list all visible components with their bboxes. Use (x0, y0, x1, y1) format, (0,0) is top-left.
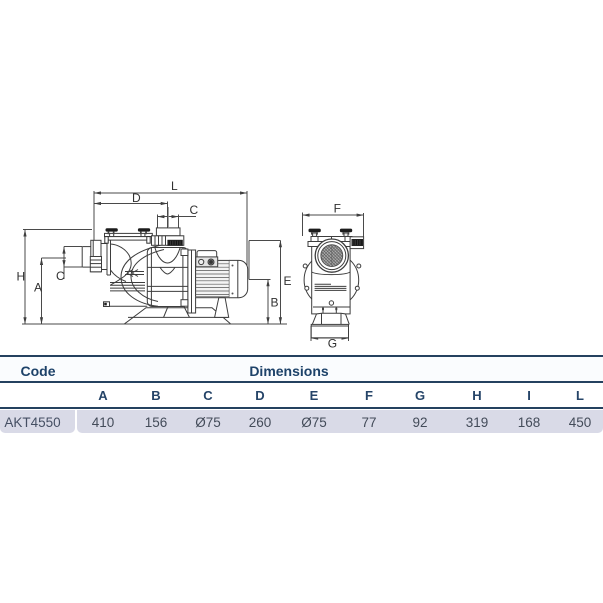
svg-text:L: L (171, 179, 178, 193)
svg-text:A: A (34, 281, 42, 295)
svg-text:C: C (56, 269, 65, 283)
svg-text:F: F (334, 201, 341, 215)
svg-text:D: D (132, 191, 141, 205)
svg-text:G: G (328, 336, 337, 350)
svg-text:H: H (17, 270, 26, 284)
svg-text:C: C (190, 203, 199, 217)
svg-text:E: E (284, 274, 292, 288)
svg-text:B: B (271, 295, 279, 309)
